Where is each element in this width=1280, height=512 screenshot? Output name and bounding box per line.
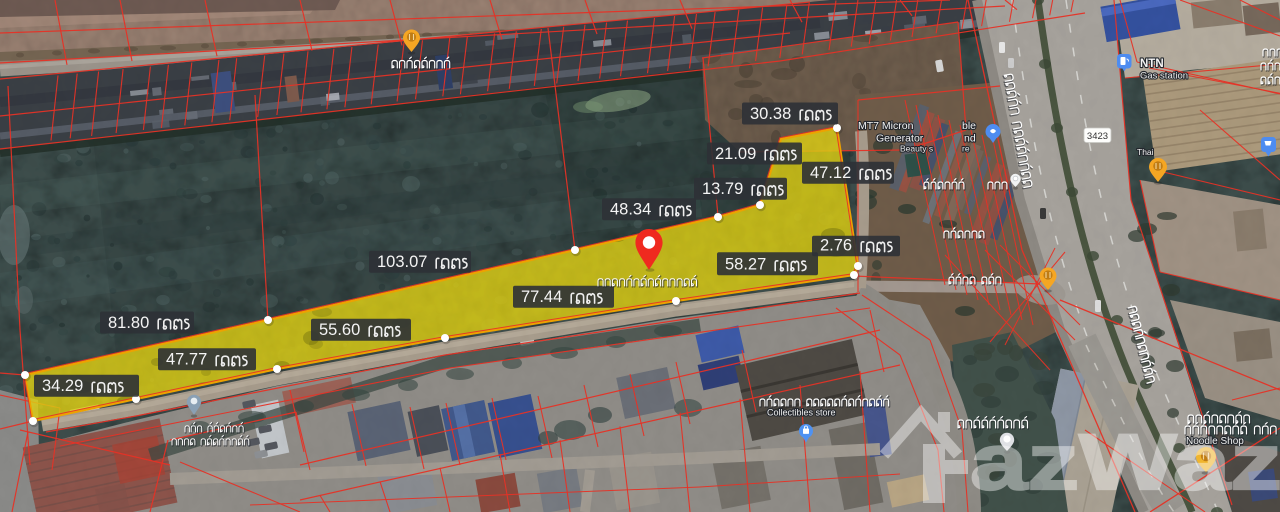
svg-text:3423: 3423 xyxy=(1087,131,1108,142)
svg-text:13.79: 13.79 xyxy=(702,180,743,198)
svg-text:Thai: Thai xyxy=(1137,147,1154,157)
svg-text:30.38: 30.38 xyxy=(750,105,791,123)
svg-text:47.77: 47.77 xyxy=(166,351,207,369)
svg-text:48.34: 48.34 xyxy=(610,201,651,219)
svg-text:103.07: 103.07 xyxy=(377,253,427,271)
svg-text:azWaz: azWaz xyxy=(970,417,1280,506)
svg-text:MT7 Micron: MT7 Micron xyxy=(858,120,914,132)
svg-text:55.60: 55.60 xyxy=(319,321,360,339)
svg-text:2.76: 2.76 xyxy=(820,237,852,255)
svg-text:47.12: 47.12 xyxy=(810,164,851,182)
svg-text:21.09: 21.09 xyxy=(715,145,756,163)
svg-text:58.27: 58.27 xyxy=(725,256,766,274)
svg-text:NTN: NTN xyxy=(1140,58,1164,70)
svg-text:ble: ble xyxy=(962,120,976,132)
svg-text:Beauty s: Beauty s xyxy=(900,144,933,154)
svg-text:77.44: 77.44 xyxy=(521,288,562,306)
svg-text:Gas station: Gas station xyxy=(1140,71,1188,82)
svg-text:81.80: 81.80 xyxy=(108,314,149,332)
svg-text:re: re xyxy=(962,144,970,154)
svg-text:Collectibles store: Collectibles store xyxy=(767,408,836,418)
svg-text:34.29: 34.29 xyxy=(42,377,83,395)
